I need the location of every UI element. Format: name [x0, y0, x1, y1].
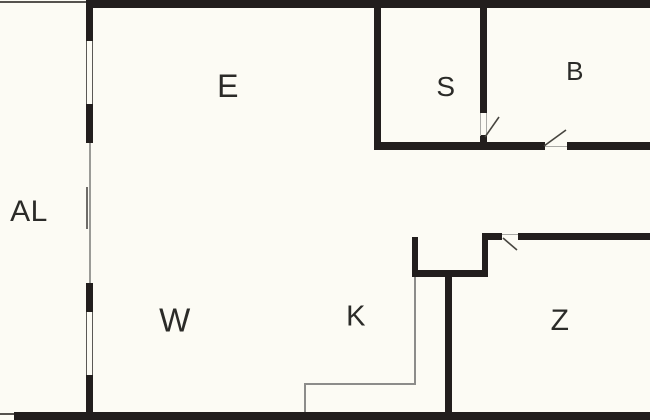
window-left-upper-icon — [92, 41, 93, 104]
wall-s-b-divider — [480, 0, 487, 113]
window-left-lower-icon — [92, 312, 93, 375]
door-s-jamb — [480, 113, 481, 136]
sliding-door-moving-panel-icon — [86, 187, 88, 229]
wall-left-segment-1 — [86, 0, 93, 41]
door-s-jamb — [486, 113, 487, 136]
sliding-door-fixed-panel-icon — [89, 143, 91, 283]
room-label-w: W — [159, 304, 191, 337]
wall-s-b-bottom-left — [374, 142, 545, 150]
wall-left-segment-4 — [86, 375, 93, 412]
wall-bottom — [14, 412, 650, 420]
wall-left-segment-2 — [86, 104, 93, 143]
wall-top — [86, 0, 650, 8]
room-label-al: AL — [10, 197, 48, 227]
kitchen-counter-edge — [304, 383, 306, 412]
wall-z-top-right — [518, 233, 650, 240]
wall-left-segment-3 — [86, 283, 93, 312]
wall-k-z-divider — [445, 277, 452, 412]
kitchen-counter-edge — [414, 277, 416, 384]
wall-niche-bottom — [412, 270, 488, 277]
room-label-b: B — [566, 58, 584, 84]
room-label-k: K — [346, 303, 366, 332]
wall-s-b-bottom-right — [567, 142, 650, 150]
door-z-threshold — [502, 234, 518, 235]
door-b-threshold — [545, 146, 567, 147]
terrace-edge-bottom — [0, 413, 14, 415]
wall-niche-right — [482, 233, 488, 277]
window-left-upper-icon — [86, 41, 87, 104]
room-label-z: Z — [551, 306, 570, 336]
room-label-e: E — [217, 70, 239, 102]
door-leaf-b-icon — [544, 130, 566, 146]
terrace-edge-top — [0, 1, 86, 3]
window-left-lower-icon — [86, 312, 87, 375]
door-leaves — [0, 0, 650, 420]
door-leaf-z-icon — [503, 238, 517, 250]
kitchen-counter-edge — [304, 383, 416, 385]
room-label-s: S — [436, 73, 455, 101]
wall-s-left — [374, 0, 381, 150]
door-leaf-s-icon — [485, 117, 499, 137]
floor-plan: AL E S B W K Z — [0, 0, 650, 420]
